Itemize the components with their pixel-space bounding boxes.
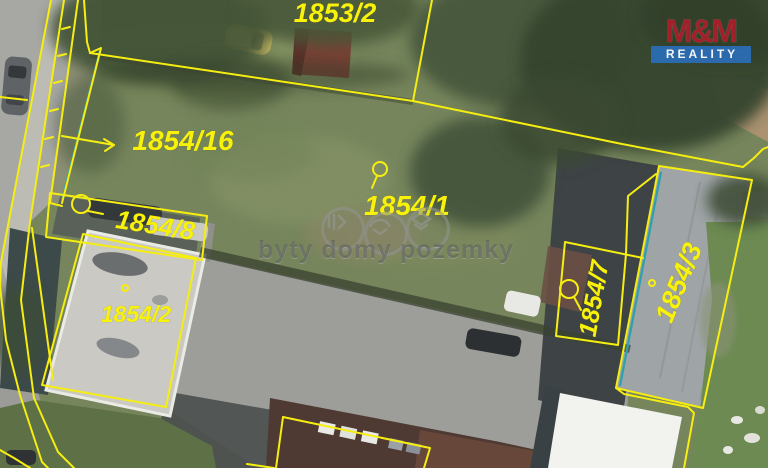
- grey-car: [1, 56, 33, 116]
- label-1854-16: 1854/16: [132, 125, 234, 156]
- logo-name: M&M: [651, 18, 751, 45]
- logo-subtitle: REALITY: [651, 46, 751, 63]
- aerial-photo-layer: 1853/2 1854/16 1854/1 1854/8 1854/2 1854…: [0, 0, 768, 468]
- label-1853-2: 1853/2: [294, 0, 377, 28]
- cadastral-aerial-map[interactable]: 1853/2 1854/16 1854/1 1854/8 1854/2 1854…: [0, 0, 768, 468]
- label-1854-2: 1854/2: [101, 301, 172, 327]
- label-1854-1: 1854/1: [364, 190, 450, 221]
- agency-logo: M&M REALITY: [651, 18, 751, 63]
